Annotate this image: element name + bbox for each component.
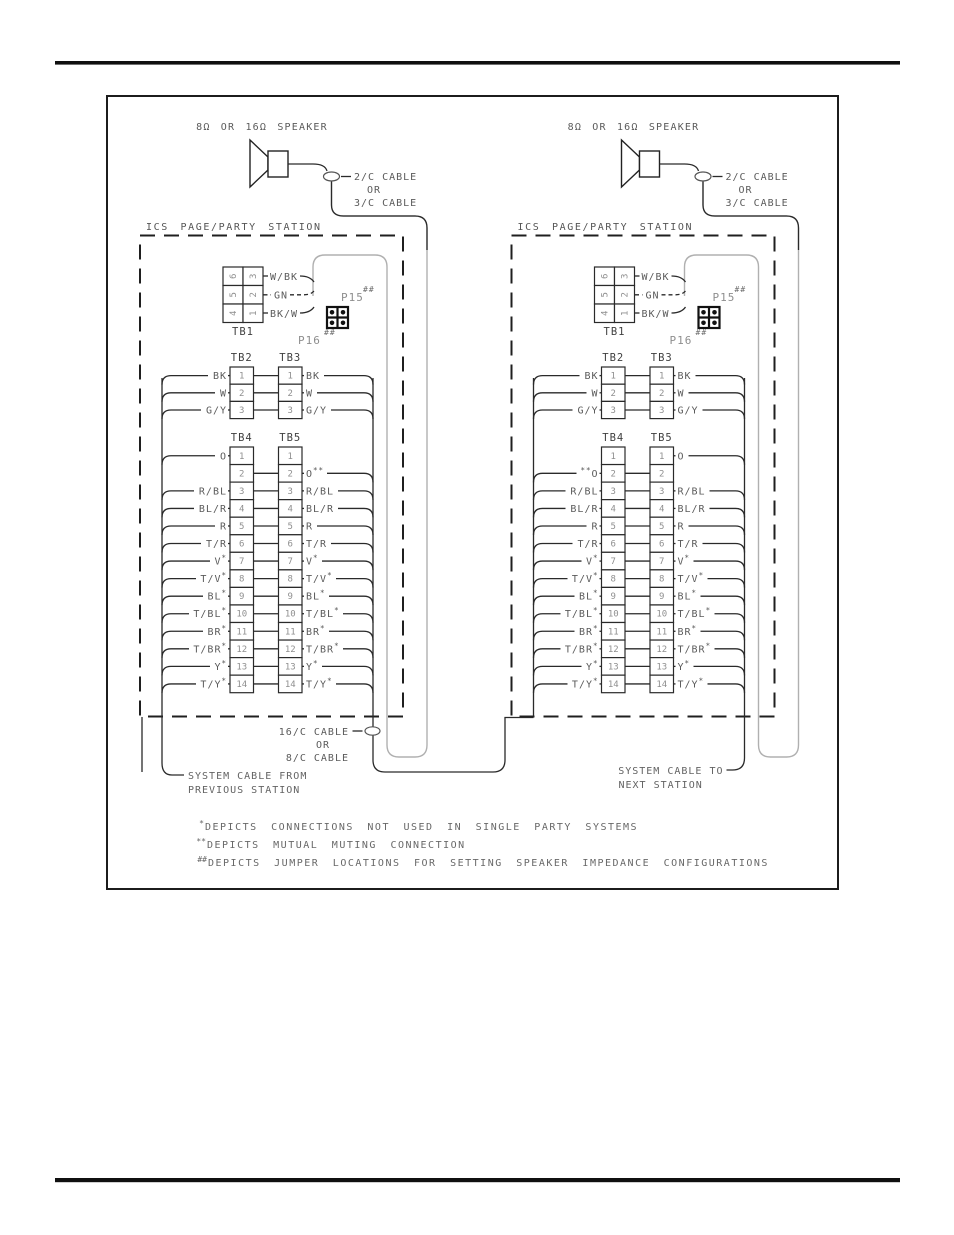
mid-cable-label-2: OR: [316, 740, 330, 751]
station-title: ICS PAGE/PARTY STATION: [146, 222, 322, 233]
wire-label: BL*: [678, 589, 698, 603]
system-cable-label: SYSTEM CABLE FROM: [188, 771, 307, 782]
tb1-pin-number: 6: [229, 274, 239, 279]
wire-label: W: [220, 388, 227, 399]
tb-cell-number: 6: [659, 540, 664, 550]
cable-type-label: 3/C CABLE: [354, 198, 417, 209]
wire-hook: [736, 649, 745, 658]
wire-label: T/R: [577, 539, 598, 550]
sup-mark: *: [221, 659, 227, 668]
wire-hook: [534, 508, 543, 517]
p16-label: P16: [670, 334, 693, 347]
cable-outline: [313, 182, 427, 757]
wire-label: T/Y*: [306, 676, 333, 690]
sup-mark: **: [313, 466, 324, 475]
sup-mark: **: [580, 466, 591, 475]
wire-hook: [300, 276, 314, 282]
wire-label: T/Y*: [678, 676, 705, 690]
wire-label: T/Y*: [200, 676, 227, 690]
tb-cell-number: 9: [659, 592, 664, 602]
wire-label: R/BL: [570, 486, 598, 497]
document-page: ICS PAGE/PARTY STATION8Ω OR 16Ω SPEAKER2…: [0, 0, 954, 1235]
wire-label: BK: [213, 371, 227, 382]
wire-hook: [736, 561, 745, 570]
label-main: BL: [678, 592, 692, 603]
wire-hook: [672, 307, 686, 313]
tb1-wire-label: W/BK: [270, 272, 298, 283]
tb-cell-number: 3: [611, 406, 616, 416]
wire-hook: [290, 290, 315, 295]
sup-mark: *: [699, 676, 705, 685]
tb1-pin-number: 1: [621, 311, 631, 316]
wire-label: BR*: [579, 624, 599, 638]
cable-type-label: 2/C CABLE: [726, 172, 789, 183]
tb-cell-number: 1: [239, 372, 244, 382]
wire-label: Y*: [678, 659, 691, 673]
sup-mark: *: [327, 571, 333, 580]
tb1-caption: TB1: [232, 326, 254, 338]
speaker-label: 8Ω OR 16Ω SPEAKER: [196, 122, 328, 133]
wire-label: R: [591, 521, 598, 532]
system-cable-label: PREVIOUS STATION: [188, 785, 300, 796]
tb-cell-number: 14: [608, 680, 619, 690]
wire-label: BR*: [207, 624, 227, 638]
tb-cell-number: 2: [239, 469, 244, 479]
wire-hook: [364, 393, 373, 402]
jumper-pin: [341, 310, 346, 315]
wire-hook: [534, 376, 543, 385]
wire-hook: [672, 276, 686, 282]
sup-mark: *: [593, 554, 599, 563]
sup-mark: *: [593, 571, 599, 580]
tb1-pin-number: 1: [249, 311, 259, 316]
tb1-pin-number: 5: [601, 292, 611, 297]
wire-hook: [534, 596, 543, 605]
jumper-pin: [712, 321, 717, 326]
sup-mark: *: [685, 554, 691, 563]
system-cable-trunk: [162, 378, 184, 775]
wire-hook: [736, 544, 745, 553]
tb-cell-number: 3: [659, 487, 664, 497]
speaker-wire: [288, 164, 327, 171]
wire-hook: [162, 491, 171, 500]
tb-caption: TB5: [279, 432, 301, 444]
bottom-rule: [55, 1178, 900, 1182]
wire-label: R/BL: [678, 486, 706, 497]
tb-cell-number: 3: [239, 487, 244, 497]
wire-hook: [364, 508, 373, 517]
system-cable-label: NEXT STATION: [619, 780, 703, 791]
wire-label: O: [220, 451, 227, 462]
sup-mark: *: [313, 554, 319, 563]
wire-hook: [364, 579, 373, 588]
wire-label: T/V*: [306, 571, 333, 585]
cable-type-or: OR: [738, 185, 752, 196]
tb-cell-number: 13: [656, 662, 667, 672]
wire-hook: [162, 526, 171, 535]
wire-hook: [534, 393, 543, 402]
sup-mark: *: [334, 641, 340, 650]
wire-hook: [364, 526, 373, 535]
wire-hook: [736, 684, 745, 693]
wire-label: G/Y: [306, 406, 327, 417]
label-main: T/Y: [306, 679, 327, 690]
tb-cell-number: 13: [285, 662, 296, 672]
wire-hook: [162, 508, 171, 517]
tb-cell-number: 10: [608, 610, 619, 620]
wire-hook: [534, 631, 543, 640]
wire-label: BK: [306, 371, 320, 382]
wire-label: R: [220, 521, 227, 532]
label-main: Y: [678, 662, 685, 673]
wire-hook: [736, 393, 745, 402]
wire-hook: [534, 491, 543, 500]
wire-label: BL/R: [570, 504, 598, 515]
tb-cell-number: 6: [239, 540, 244, 550]
label-main: V: [678, 557, 685, 568]
wire-label: T/R: [306, 539, 327, 550]
sup-mark: *: [320, 589, 326, 598]
wire-label: BK: [584, 371, 598, 382]
wire-hook: [364, 631, 373, 640]
tb1-caption: TB1: [604, 326, 626, 338]
label-main: T/BL: [565, 609, 593, 620]
sup-mark: *: [334, 606, 340, 615]
wire-label: T/R: [678, 539, 699, 550]
wire-label: G/Y: [206, 406, 227, 417]
interstation-cable: [373, 718, 534, 773]
label-main: BR: [678, 627, 692, 638]
wire-label: BL/R: [306, 504, 334, 515]
jumper-pin: [330, 310, 335, 315]
cable-bundle-connector: [324, 172, 340, 181]
wire-label: W: [306, 388, 313, 399]
tb-cell-number: 5: [288, 522, 293, 532]
label-main: Y: [586, 662, 593, 673]
label-main: T/V: [200, 574, 221, 585]
wire-hook: [736, 410, 745, 419]
label-main: O: [591, 469, 598, 480]
wire-label: G/Y: [577, 406, 598, 417]
wire-label: Y*: [214, 659, 227, 673]
tb-cell-number: 2: [239, 389, 244, 399]
label-main: BL: [306, 592, 320, 603]
wire-label: BR*: [306, 624, 326, 638]
tb-caption: TB5: [651, 432, 673, 444]
wire-label: T/V*: [678, 571, 705, 585]
wire-label: BL/R: [678, 504, 706, 515]
tb-cell-number: 4: [239, 504, 244, 514]
label-main: T/V: [572, 574, 593, 585]
sup-mark: *: [706, 606, 712, 615]
tb-cell-number: 6: [611, 540, 616, 550]
station-title: ICS PAGE/PARTY STATION: [518, 222, 694, 233]
wire-hook: [162, 614, 171, 623]
label-main: T/V: [306, 574, 327, 585]
wire-hook: [162, 631, 171, 640]
jumper-pin: [330, 321, 335, 326]
wire-label: O**: [306, 466, 324, 480]
tb-cell-number: 5: [239, 522, 244, 532]
wire-hook: [534, 614, 543, 623]
wire-hook: [736, 491, 745, 500]
wire-label: G/Y: [678, 406, 699, 417]
label-main: T/BR: [678, 644, 706, 655]
mid-cable-label-1: 16/C CABLE: [279, 727, 349, 738]
p16-sup: ##: [696, 328, 708, 337]
wire-hook: [736, 579, 745, 588]
wire-label: **O: [580, 466, 598, 480]
label-main: V: [586, 557, 593, 568]
tb-cell-number: 1: [239, 452, 244, 462]
tb1-pin-number: 2: [249, 292, 259, 297]
speaker-body-icon: [640, 151, 660, 177]
wire-hook: [736, 596, 745, 605]
tb-cell-number: 8: [659, 575, 664, 585]
sup-mark: *: [692, 589, 698, 598]
station-left: ICS PAGE/PARTY STATION8Ω OR 16Ω SPEAKER2…: [140, 122, 427, 796]
tb1-pin-number: 3: [249, 274, 259, 279]
label-main: BL: [579, 592, 593, 603]
tb-cell-number: 9: [288, 592, 293, 602]
wire-label: T/BL*: [306, 606, 340, 620]
cable-type-or: OR: [367, 185, 381, 196]
wire-hook: [534, 684, 543, 693]
wire-label: Y*: [586, 659, 599, 673]
wire-hook: [534, 526, 543, 535]
wire-label: T/R: [206, 539, 227, 550]
tb-caption: TB3: [279, 352, 301, 364]
wire-label: T/Y*: [572, 676, 599, 690]
label-main: T/BL: [306, 609, 334, 620]
label-main: T/BR: [193, 644, 221, 655]
sup-mark: *: [221, 589, 227, 598]
tb1-pin-number: 5: [229, 292, 239, 297]
wire-hook: [364, 684, 373, 693]
tb-cell-number: 3: [239, 406, 244, 416]
tb-cell-number: 1: [659, 372, 664, 382]
tb-cell-number: 8: [611, 575, 616, 585]
tb-cell-number: 1: [659, 452, 664, 462]
tb-cell-number: 3: [288, 487, 293, 497]
sup-mark: *: [320, 624, 326, 633]
tb-caption: TB3: [651, 352, 673, 364]
wire-label: R/BL: [306, 486, 334, 497]
tb-cell-number: 14: [656, 680, 667, 690]
sup-mark: *: [593, 606, 599, 615]
wire-label: BL/R: [199, 504, 227, 515]
sup-mark: *: [593, 589, 599, 598]
label-main: T/Y: [200, 679, 221, 690]
wire-hook: [662, 290, 687, 295]
tb-cell-number: 1: [611, 372, 616, 382]
tb1-pin-number: 2: [621, 292, 631, 297]
wire-label: T/V*: [200, 571, 227, 585]
wire-hook: [364, 473, 373, 482]
tb-cell-number: 4: [659, 504, 664, 514]
cable-bundle-connector: [695, 172, 711, 181]
sup-mark: *: [313, 659, 319, 668]
tb-cell-number: 11: [236, 627, 247, 637]
wire-label: T/V*: [572, 571, 599, 585]
tb1-pin-number: 3: [621, 274, 631, 279]
tb-cell-number: 10: [285, 610, 296, 620]
label-main: V: [214, 557, 221, 568]
sup-mark: *: [685, 659, 691, 668]
wire-label: BL*: [579, 589, 599, 603]
tb-cell-number: 1: [611, 452, 616, 462]
wire-label: T/BR*: [565, 641, 599, 655]
sup-mark: *: [593, 641, 599, 650]
note-1-text: DEPICTS CONNECTIONS NOT USED IN SINGLE P…: [205, 822, 638, 833]
speaker-body-icon: [268, 151, 288, 177]
system-cable-trunk: [727, 378, 745, 770]
sup-mark: *: [221, 624, 227, 633]
speaker-horn-icon: [250, 140, 268, 187]
tb-cell-number: 2: [611, 389, 616, 399]
wire-hook: [534, 410, 543, 419]
wire-label: T/BL*: [193, 606, 227, 620]
wire-hook: [364, 666, 373, 675]
top-rule: [55, 61, 900, 65]
cable-type-label: 3/C CABLE: [726, 198, 789, 209]
tb-cell-number: 14: [236, 680, 247, 690]
wire-hook: [736, 631, 745, 640]
wire-hook: [162, 561, 171, 570]
tb1-pin-number: 4: [601, 311, 611, 316]
tb-cell-number: 12: [656, 645, 667, 655]
wire-hook: [736, 376, 745, 385]
label-main: T/Y: [678, 679, 699, 690]
wire-hook: [162, 596, 171, 605]
tb1-wire-label: BK/W: [270, 309, 298, 320]
wire-hook: [162, 544, 171, 553]
wire-hook: [364, 614, 373, 623]
tb-caption: TB4: [231, 432, 253, 444]
wire-label: T/BL*: [678, 606, 712, 620]
note-1-prefix: *: [199, 819, 204, 828]
p16-sup: ##: [324, 328, 336, 337]
sup-mark: *: [221, 641, 227, 650]
wire-label: V*: [678, 554, 691, 568]
wire-hook: [534, 666, 543, 675]
tb-cell-number: 1: [288, 452, 293, 462]
tb-cell-number: 7: [239, 557, 244, 567]
wire-hook: [300, 307, 314, 313]
tb-cell-number: 10: [236, 610, 247, 620]
tb1-wire-label: W/BK: [642, 272, 670, 283]
tb-cell-number: 5: [659, 522, 664, 532]
tb-cell-number: 2: [659, 469, 664, 479]
label-main: BR: [207, 627, 221, 638]
station-right: ICS PAGE/PARTY STATION8Ω OR 16Ω SPEAKER2…: [512, 122, 799, 791]
wire-hook: [534, 649, 543, 658]
wire-label: BR*: [678, 624, 698, 638]
sup-mark: *: [221, 554, 227, 563]
p15-sup: ##: [363, 285, 375, 294]
station-boundary: [140, 236, 403, 717]
tb-cell-number: 3: [659, 406, 664, 416]
tb-cell-number: 6: [288, 540, 293, 550]
sup-mark: *: [593, 659, 599, 668]
wire-hook: [364, 596, 373, 605]
speaker-wire: [660, 164, 699, 171]
wire-hook: [736, 456, 745, 465]
wire-label: R/BL: [199, 486, 227, 497]
label-main: T/BL: [193, 609, 221, 620]
wire-label: O: [678, 451, 685, 462]
p15-label: P15: [713, 291, 736, 304]
tb-cell-number: 2: [611, 469, 616, 479]
tb-cell-number: 8: [288, 575, 293, 585]
speaker-label: 8Ω OR 16Ω SPEAKER: [568, 122, 700, 133]
label-main: BR: [306, 627, 320, 638]
label-main: BR: [579, 627, 593, 638]
wire-hook: [364, 561, 373, 570]
tb-cell-number: 7: [659, 557, 664, 567]
wire-hook: [534, 579, 543, 588]
wire-hook: [364, 649, 373, 658]
tb1-pin-number: 6: [601, 274, 611, 279]
wire-label: V*: [586, 554, 599, 568]
tb-cell-number: 7: [611, 557, 616, 567]
label-main: V: [306, 557, 313, 568]
sup-mark: *: [221, 606, 227, 615]
wire-label: BL*: [207, 589, 227, 603]
mid-cable-label-3: 8/C CABLE: [286, 753, 349, 764]
wire-hook: [364, 544, 373, 553]
wire-label: V*: [306, 554, 319, 568]
sup-mark: *: [706, 641, 712, 650]
label-main: T/V: [678, 574, 699, 585]
wire-hook: [534, 561, 543, 570]
tb-cell-number: 9: [239, 592, 244, 602]
sup-mark: *: [221, 676, 227, 685]
tb-cell-number: 3: [611, 487, 616, 497]
p15-label: P15: [341, 291, 364, 304]
wire-label: W: [591, 388, 598, 399]
note-2-text: DEPICTS MUTUAL MUTING CONNECTION: [207, 840, 466, 851]
wire-hook: [162, 393, 171, 402]
tb-cell-number: 2: [288, 389, 293, 399]
wire-label: T/BL*: [565, 606, 599, 620]
wire-hook: [736, 666, 745, 675]
wire-label: BL*: [306, 589, 326, 603]
label-main: T/Y: [572, 679, 593, 690]
wire-label: T/BR*: [678, 641, 712, 655]
sup-mark: *: [692, 624, 698, 633]
tb-caption: TB2: [602, 352, 624, 364]
tb1-wire-label: BK/W: [642, 309, 670, 320]
tb-cell-number: 13: [608, 662, 619, 672]
sup-mark: *: [699, 571, 705, 580]
tb1-wire-label: GN: [646, 291, 660, 302]
tb-cell-number: 8: [239, 575, 244, 585]
tb-cell-number: 1: [288, 372, 293, 382]
label-main: T/BR: [565, 644, 593, 655]
tb-cell-number: 2: [659, 389, 664, 399]
speaker-horn-icon: [622, 140, 640, 187]
tb1-wire-label: GN: [274, 291, 288, 302]
p16-label: P16: [298, 334, 321, 347]
wiring-diagram: ICS PAGE/PARTY STATION8Ω OR 16Ω SPEAKER2…: [0, 0, 954, 1235]
tb-cell-number: 13: [236, 662, 247, 672]
jumper-pin: [341, 321, 346, 326]
p15-sup: ##: [735, 285, 747, 294]
tb-cell-number: 4: [288, 504, 293, 514]
wire-hook: [364, 491, 373, 500]
wire-hook: [162, 456, 171, 465]
